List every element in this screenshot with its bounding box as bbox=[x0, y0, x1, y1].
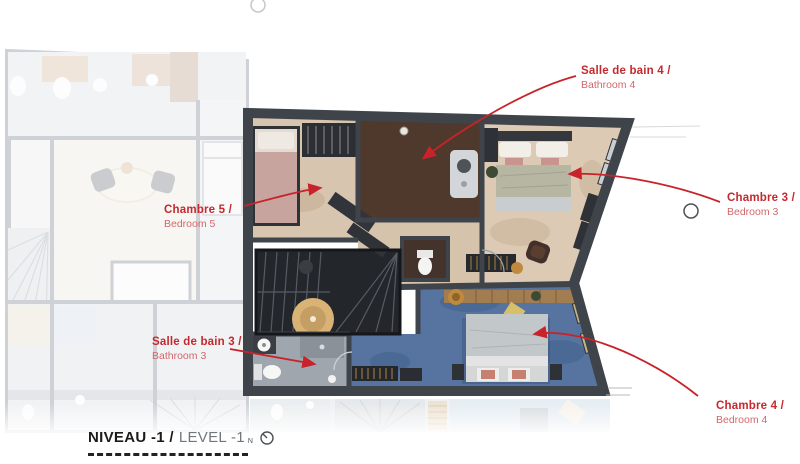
room-label-bedroom-5: Chambre 5 / Bedroom 5 bbox=[164, 204, 232, 230]
label-fr: Salle de bain 3 / bbox=[152, 336, 242, 349]
floor-plan-canvas bbox=[0, 0, 800, 464]
bathroom3-toilet bbox=[263, 365, 281, 379]
bedroom3-bench bbox=[466, 254, 516, 272]
north-letter: N bbox=[248, 438, 253, 445]
grid-marker-icon bbox=[251, 0, 265, 12]
label-fr: Chambre 5 / bbox=[164, 204, 232, 217]
level-title-fr: NIVEAU -1 / bbox=[88, 429, 174, 446]
room-label-bedroom-4: Chambre 4 / Bedroom 4 bbox=[716, 400, 784, 426]
bedroom4-bed bbox=[452, 314, 562, 384]
bedroom5-wardrobe bbox=[302, 123, 356, 157]
level-title: NIVEAU -1 / LEVEL -1 N bbox=[88, 429, 275, 446]
room-label-bathroom-4: Salle de bain 4 / Bathroom 4 bbox=[581, 65, 671, 91]
wc-toilet bbox=[417, 250, 433, 275]
plan-marker-icon bbox=[684, 204, 698, 218]
label-en: Bathroom 3 bbox=[152, 350, 242, 362]
room-label-bathroom-3: Salle de bain 3 / Bathroom 3 bbox=[152, 336, 242, 362]
title-dashed-underline bbox=[88, 453, 248, 456]
label-fr: Chambre 3 / bbox=[727, 192, 795, 205]
label-en: Bathroom 4 bbox=[581, 79, 671, 91]
bathroom4-vanity bbox=[450, 150, 478, 198]
label-en: Bedroom 5 bbox=[164, 218, 232, 230]
floor-plan-page: Salle de bain 4 / Bathroom 4 Chambre 5 /… bbox=[0, 0, 800, 464]
reference-lines bbox=[606, 126, 700, 395]
room-label-bedroom-3: Chambre 3 / Bedroom 3 bbox=[727, 192, 795, 218]
label-en: Bedroom 4 bbox=[716, 414, 784, 426]
label-fr: Salle de bain 4 / bbox=[581, 65, 671, 78]
label-fr: Chambre 4 / bbox=[716, 400, 784, 413]
main-floor-plan bbox=[248, 113, 700, 395]
bedroom4-slat-bench bbox=[352, 366, 422, 381]
label-en: Bedroom 3 bbox=[727, 206, 795, 218]
level-title-en: LEVEL -1 bbox=[179, 429, 245, 446]
bedroom5-bed bbox=[252, 126, 300, 226]
north-arrow-icon bbox=[259, 430, 275, 446]
